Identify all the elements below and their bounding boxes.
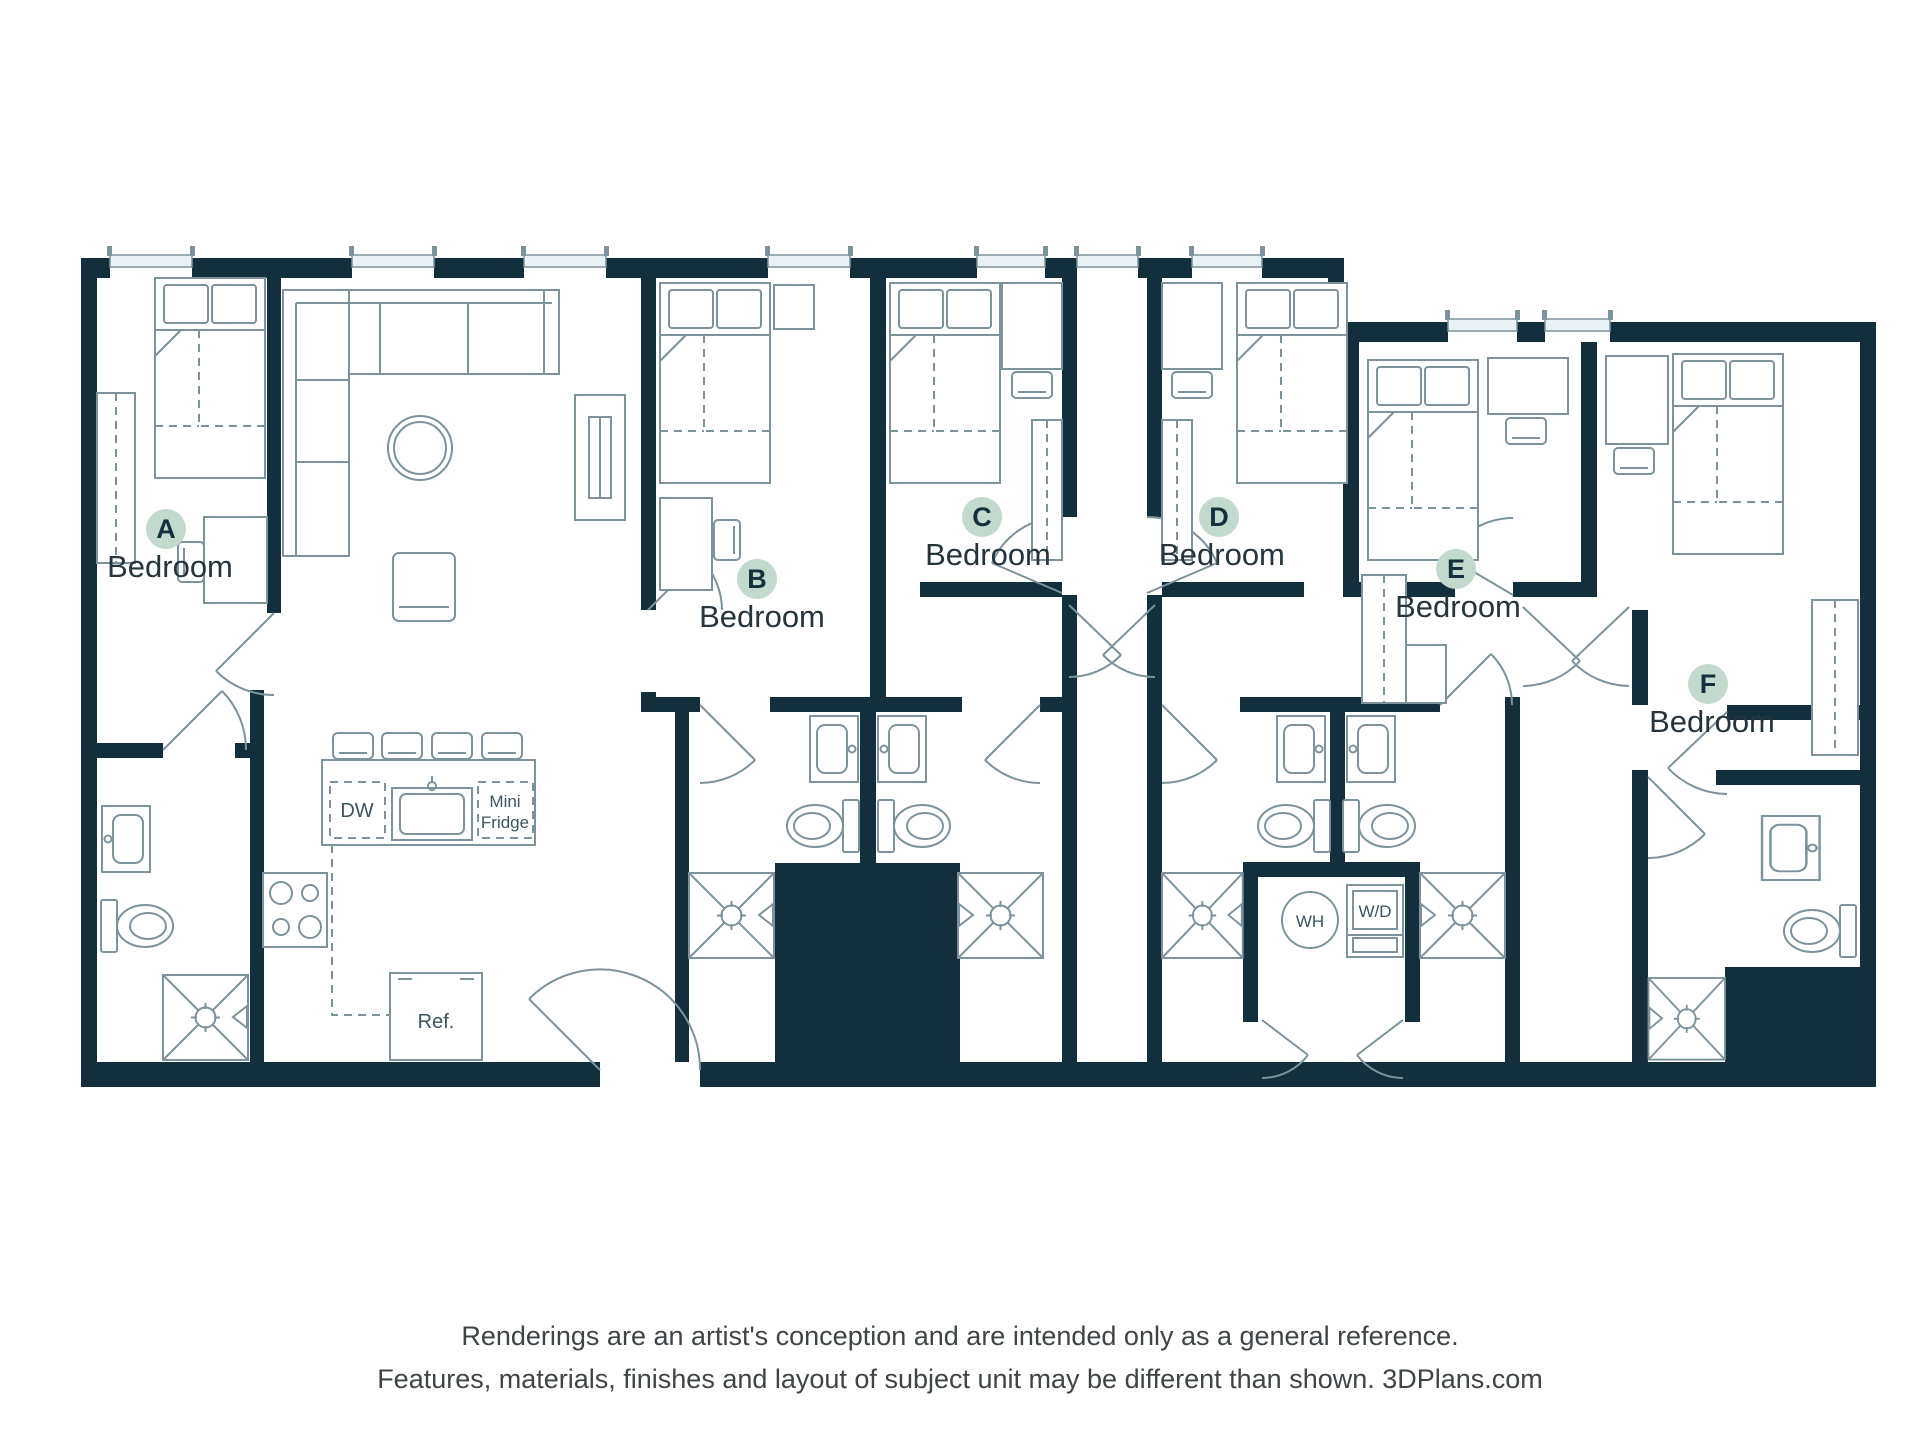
- wall-c-vestibule-upper: [1062, 278, 1077, 517]
- wall-bath-a-stub: [235, 743, 250, 758]
- toilet: [878, 800, 950, 852]
- shower: [1420, 873, 1505, 958]
- wall-bath-e-right: [1505, 697, 1520, 1062]
- bath-a: [101, 806, 248, 1060]
- bedroom-e: E Bedroom: [1362, 358, 1568, 703]
- armchair: [393, 553, 455, 621]
- toilet: [1784, 905, 1856, 957]
- door-bath-b: [700, 705, 755, 783]
- bedroom-c: C Bedroom: [890, 283, 1062, 572]
- bedroom-c-letter: C: [972, 502, 992, 532]
- door-bath-e: [1440, 654, 1512, 705]
- wall-notch-f: [1725, 967, 1860, 1062]
- desk: [1606, 356, 1668, 444]
- wall-bath-a-top: [81, 743, 163, 758]
- washer-dryer-label: W/D: [1358, 902, 1391, 921]
- wall-b-c: [870, 278, 886, 712]
- bedroom-b: B Bedroom: [660, 283, 825, 634]
- bar-stool: [482, 733, 522, 759]
- wall-closet-right: [1405, 862, 1420, 1022]
- wall-living-b: [641, 278, 656, 610]
- wall-e-bottom-right: [1513, 582, 1581, 597]
- shower: [1162, 873, 1243, 958]
- wall-baths-top-3: [1040, 697, 1062, 712]
- bed: [890, 283, 1000, 483]
- door-bath-a: [163, 691, 246, 750]
- bedroom-a-letter: A: [156, 514, 176, 544]
- stove: [263, 873, 327, 947]
- door-bath-d: [1162, 705, 1217, 783]
- door-vestibule-ef-right: [1572, 607, 1629, 686]
- wall-a-living: [267, 278, 281, 613]
- door-bedroom-a: [216, 613, 274, 695]
- floor-plan-page: A Bedroom DW Mini Fridge: [0, 0, 1920, 1440]
- refrigerator: Ref.: [390, 973, 482, 1060]
- wall-right: [1860, 322, 1876, 1087]
- vanity: [810, 716, 858, 782]
- footer-line-2: Features, materials, finishes and layout…: [377, 1364, 1543, 1394]
- bedroom-a-label: Bedroom: [107, 549, 233, 584]
- wall-bath-f-top: [1716, 770, 1860, 785]
- refrigerator-label: Ref.: [418, 1011, 455, 1033]
- wall-baths-top-1: [641, 697, 700, 712]
- window: [349, 246, 437, 278]
- bar-stool: [432, 733, 472, 759]
- window: [765, 246, 853, 278]
- desk: [1162, 283, 1222, 369]
- door-vestibule-ef-left: [1523, 607, 1580, 686]
- desk-chair: [1506, 418, 1546, 444]
- desk-chair: [1172, 372, 1212, 398]
- bedroom-e-label: Bedroom: [1395, 589, 1521, 624]
- wall-closet-left: [1243, 862, 1258, 1022]
- window: [1445, 310, 1520, 342]
- floor-plan-svg: A Bedroom DW Mini Fridge: [0, 0, 1920, 1440]
- wall-bath-a-kitchen: [250, 690, 264, 1062]
- vanity: [1762, 816, 1820, 880]
- vanity: [1347, 716, 1395, 782]
- bedroom-f-letter: F: [1700, 669, 1717, 699]
- vanity: [102, 806, 150, 872]
- bar-stool: [333, 733, 373, 759]
- bed: [1368, 360, 1478, 560]
- window: [1189, 246, 1265, 278]
- toilet: [1258, 800, 1330, 852]
- window: [974, 246, 1048, 278]
- counter-outline: [332, 845, 390, 1015]
- window: [1074, 246, 1141, 278]
- washer-dryer: W/D: [1347, 885, 1403, 957]
- mini-fridge-label-2: Fridge: [481, 813, 529, 832]
- bed: [155, 278, 265, 478]
- wall-vestibule-d-lower: [1147, 595, 1162, 1062]
- bedroom-d: D Bedroom: [1159, 283, 1347, 572]
- dresser-2: [1406, 645, 1446, 703]
- desk: [1002, 283, 1062, 369]
- bed: [1673, 354, 1783, 554]
- window: [107, 246, 195, 278]
- toilet: [101, 900, 173, 952]
- desk-chair: [1614, 448, 1654, 474]
- wall-corridor-f: [1632, 610, 1648, 705]
- bedroom-f-label: Bedroom: [1649, 704, 1775, 739]
- kitchen: DW Mini Fridge Ref.: [263, 733, 535, 1060]
- bedroom-c-label: Bedroom: [925, 537, 1051, 572]
- bedroom-e-letter: E: [1447, 554, 1465, 584]
- bedroom-a: A Bedroom: [97, 278, 267, 603]
- toilet: [787, 800, 859, 852]
- door-bath-c: [985, 705, 1040, 783]
- wall-closet-top: [1243, 862, 1420, 877]
- shower: [958, 873, 1043, 958]
- round-table: [388, 416, 452, 480]
- wall-vestibule-d-upper: [1147, 278, 1162, 517]
- wall-notch-bc: [775, 863, 960, 1062]
- wall-bath-f-left: [1632, 770, 1648, 1062]
- utility-closet: WH W/D: [1282, 885, 1403, 957]
- door-bath-f: [1648, 777, 1705, 858]
- living-room: [283, 290, 625, 621]
- vanity: [878, 716, 926, 782]
- wall-d-bottom: [1162, 582, 1304, 597]
- shower: [1649, 978, 1726, 1060]
- wall-baths-top-2: [770, 697, 962, 712]
- shower: [689, 873, 774, 958]
- toilet: [1343, 800, 1415, 852]
- wall-bottom-left: [81, 1062, 600, 1087]
- bed: [660, 283, 770, 483]
- wall-e-f: [1581, 342, 1597, 597]
- desk: [660, 498, 712, 590]
- dishwasher-label: DW: [340, 800, 373, 822]
- footer-line-1: Renderings are an artist's conception an…: [461, 1321, 1458, 1351]
- footer: Renderings are an artist's conception an…: [377, 1321, 1543, 1394]
- desk-chair: [714, 520, 740, 560]
- bar-stool: [382, 733, 422, 759]
- nightstand: [774, 285, 814, 329]
- bedroom-d-letter: D: [1209, 502, 1229, 532]
- bedroom-d-label: Bedroom: [1159, 537, 1285, 572]
- desk: [1488, 358, 1568, 414]
- desk-chair: [1012, 372, 1052, 398]
- wall-top-main: [81, 258, 1343, 278]
- window: [1542, 310, 1613, 342]
- bed: [1237, 283, 1347, 483]
- window: [521, 246, 609, 278]
- door-entry: [529, 969, 700, 1070]
- bedroom-b-letter: B: [747, 564, 767, 594]
- vanity: [1277, 716, 1325, 782]
- shower: [163, 975, 248, 1060]
- wall-bottom-right: [700, 1062, 1876, 1087]
- wall-left: [81, 258, 97, 1087]
- wall-c-vestibule-lower: [1062, 595, 1077, 1062]
- mini-fridge-label-1: Mini: [489, 792, 520, 811]
- water-heater-label: WH: [1296, 912, 1324, 931]
- bedroom-b-label: Bedroom: [699, 599, 825, 634]
